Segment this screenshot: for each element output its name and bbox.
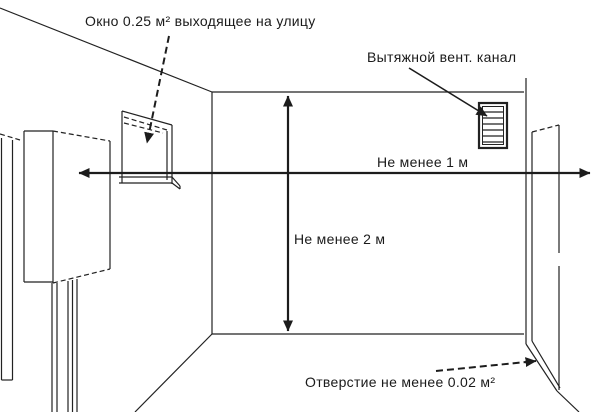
min-width-label: Не менее 1 м <box>377 154 468 170</box>
diagram-canvas: Окно 0.25 м² выходящее на улицу Вытяжной… <box>0 0 600 412</box>
vent-grille <box>479 103 507 148</box>
door-opening-label: Отверстие не менее 0.02 м² <box>305 374 495 390</box>
window-label: Окно 0.25 м² выходящее на улицу <box>85 13 316 29</box>
room-outline <box>0 8 579 412</box>
room-diagram: Окно 0.25 м² выходящее на улицу Вытяжной… <box>0 0 600 412</box>
side-panel-sketch <box>0 134 20 380</box>
vent-channel-label: Вытяжной вент. канал <box>367 49 516 65</box>
window-sketch <box>119 111 180 189</box>
boiler-pipes <box>52 279 77 412</box>
opening-leader-arrow <box>436 361 536 371</box>
boiler-sketch <box>24 131 110 283</box>
door-sketch <box>532 125 559 390</box>
min-height-label: Не менее 2 м <box>294 231 385 247</box>
